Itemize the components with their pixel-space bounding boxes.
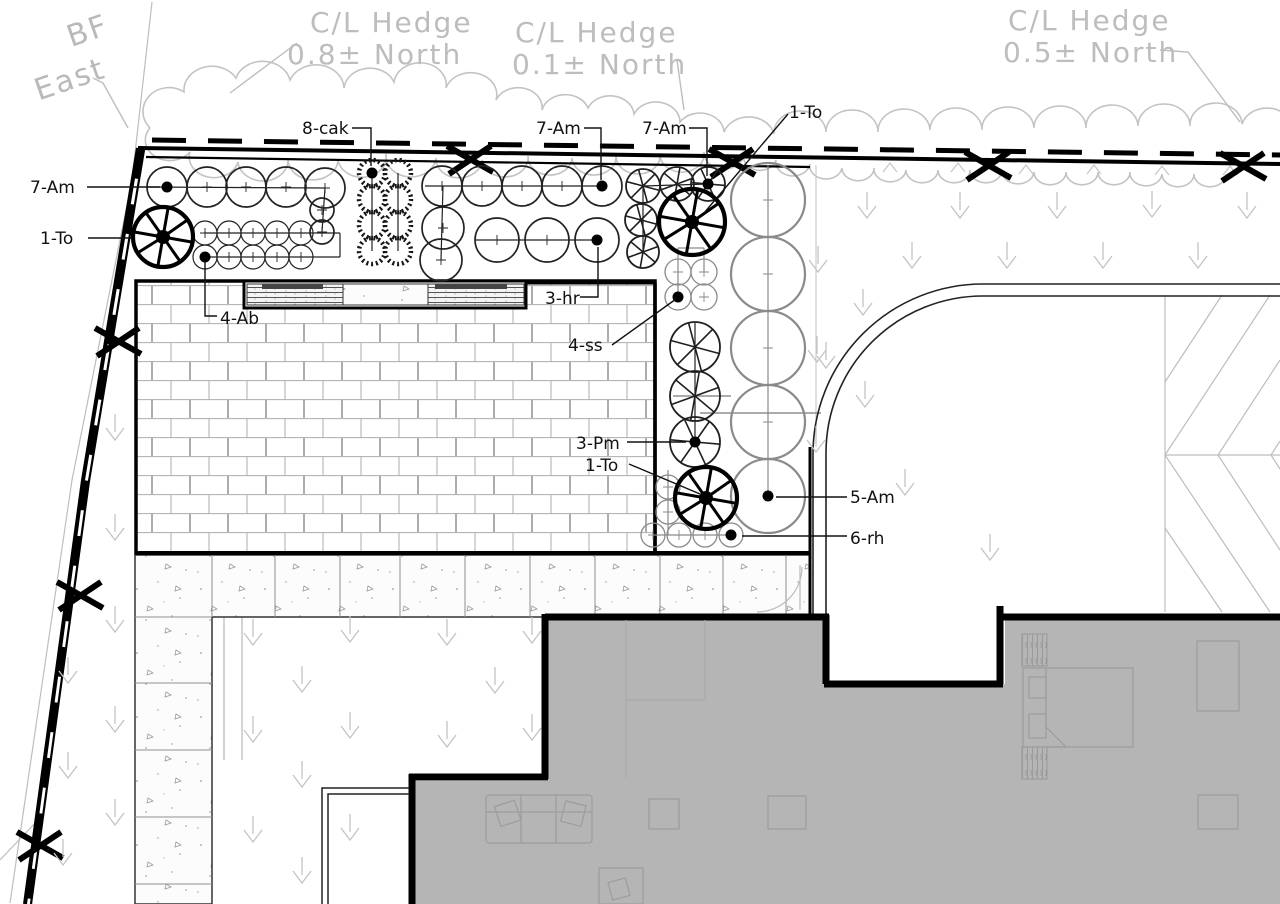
label-7am-mid: 7-Am <box>536 119 581 139</box>
label-4ab: 4-Ab <box>220 309 259 329</box>
label-anchor-dot <box>367 168 378 179</box>
hedge-label-01: C/L Hedge 0.1± North <box>512 16 687 81</box>
label-1to-north: 1-To <box>789 103 822 123</box>
hedge-01-line1: C/L Hedge <box>515 16 678 49</box>
hedge-label-05: C/L Hedge 0.5± North <box>1003 4 1178 69</box>
label-7am-west: 7-Am <box>30 178 75 198</box>
planter-cap-west <box>262 284 323 289</box>
label-3hr: 3-hr <box>545 289 580 309</box>
landscape-plan-drawing: BF East C/L Hedge 0.8± North C/L Hedge 0… <box>0 0 1280 904</box>
brick-patio <box>136 281 655 553</box>
hedge-08-line2: 0.8± North <box>287 38 462 71</box>
label-3pm: 3-Pm <box>576 434 620 454</box>
label-anchor-dot <box>162 182 173 193</box>
label-anchor-dot <box>763 491 774 502</box>
hedge-05-line2: 0.5± North <box>1003 36 1178 69</box>
landscape-plan-page: BF East C/L Hedge 0.8± North C/L Hedge 0… <box>0 0 1280 904</box>
label-4ss: 4-ss <box>568 336 603 356</box>
label-anchor-dot <box>592 235 603 246</box>
label-anchor-dot <box>703 179 714 190</box>
hedge-08-line1: C/L Hedge <box>310 6 473 39</box>
planter-bench <box>244 281 526 308</box>
wardrobe-lower <box>1022 747 1047 779</box>
label-anchor-dot <box>597 181 608 192</box>
planter-cap-east <box>435 284 507 289</box>
label-1to-west: 1-To <box>40 229 73 249</box>
label-8cak: 8-cak <box>302 119 349 139</box>
wardrobe-upper <box>1022 634 1047 666</box>
label-anchor-dot <box>200 252 211 263</box>
hedge-label-08: C/L Hedge 0.8± North <box>287 6 473 71</box>
label-anchor-dot <box>690 437 701 448</box>
label-6rh: 6-rh <box>850 529 884 549</box>
label-anchor-dot <box>726 530 737 541</box>
hedge-01-line2: 0.1± North <box>512 48 687 81</box>
label-7am-east: 7-Am <box>642 119 687 139</box>
planter-concrete-center <box>343 284 428 305</box>
label-1to-south: 1-To <box>585 456 618 476</box>
label-5am: 5-Am <box>850 488 895 508</box>
hedge-05-line1: C/L Hedge <box>1008 4 1171 37</box>
